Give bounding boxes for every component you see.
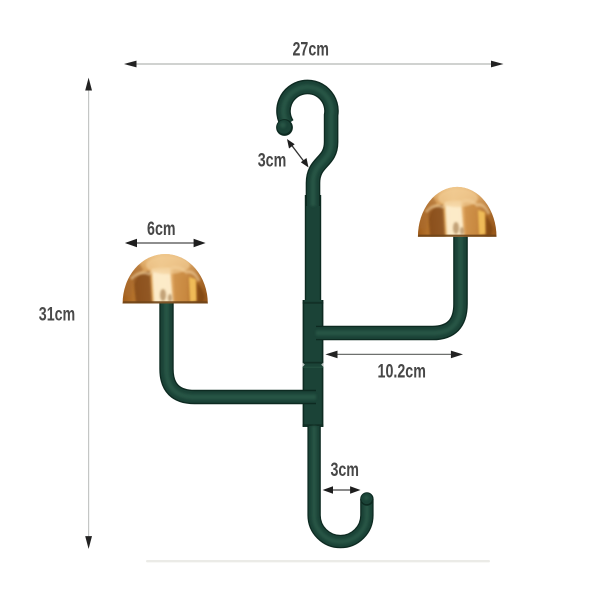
svg-text:6cm: 6cm <box>147 218 176 239</box>
svg-text:3cm: 3cm <box>258 149 287 170</box>
svg-text:10.2cm: 10.2cm <box>378 361 426 382</box>
svg-text:31cm: 31cm <box>39 303 75 324</box>
svg-text:27cm: 27cm <box>292 38 328 59</box>
svg-text:3cm: 3cm <box>330 459 359 480</box>
